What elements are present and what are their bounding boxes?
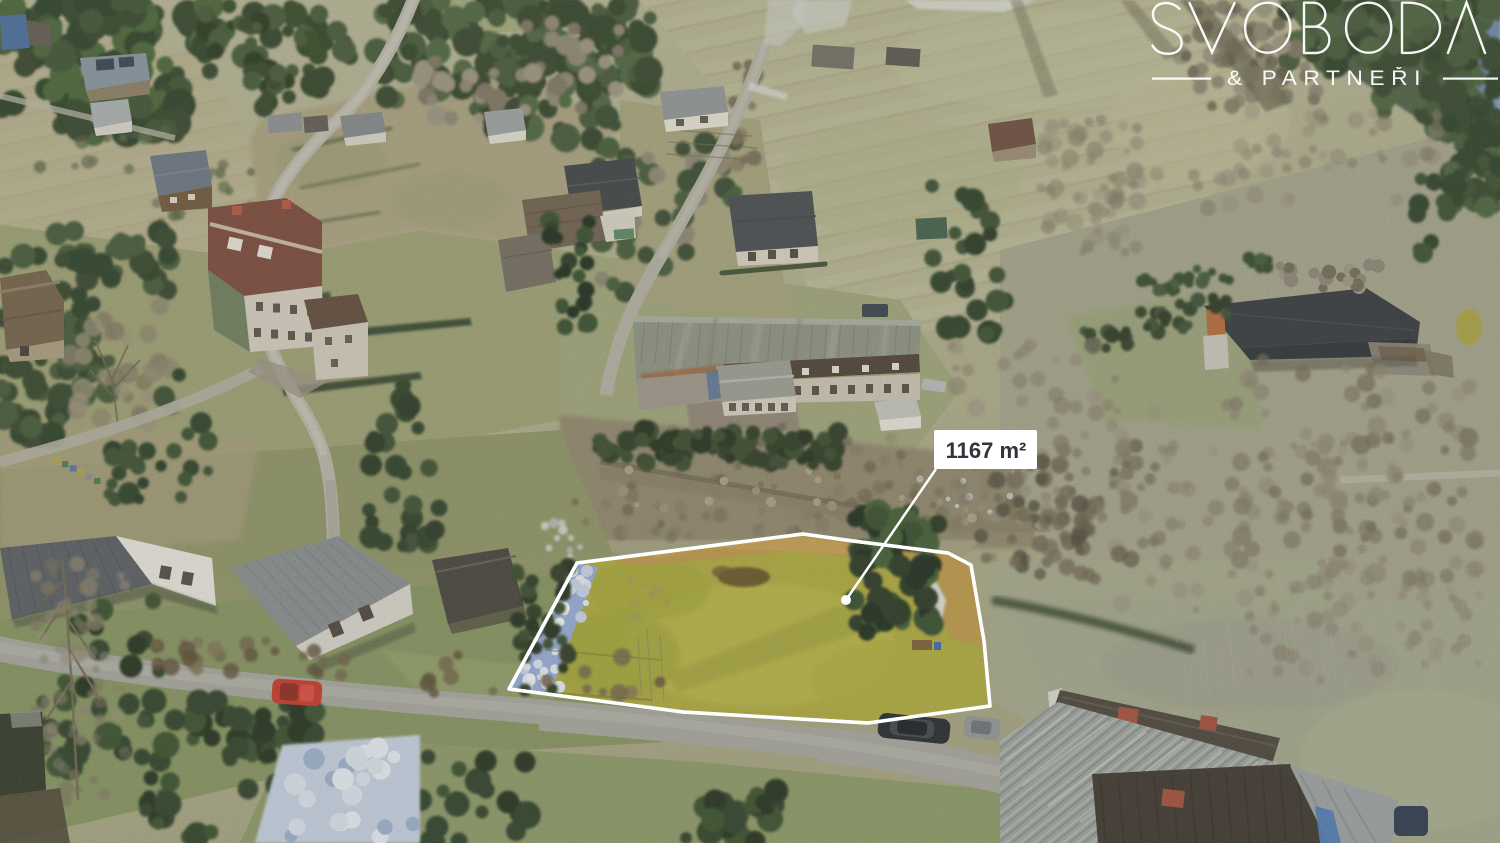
svg-text:& PARTNEŘI: & PARTNEŘI bbox=[1227, 67, 1427, 90]
svg-text:1167 m²: 1167 m² bbox=[946, 438, 1027, 463]
